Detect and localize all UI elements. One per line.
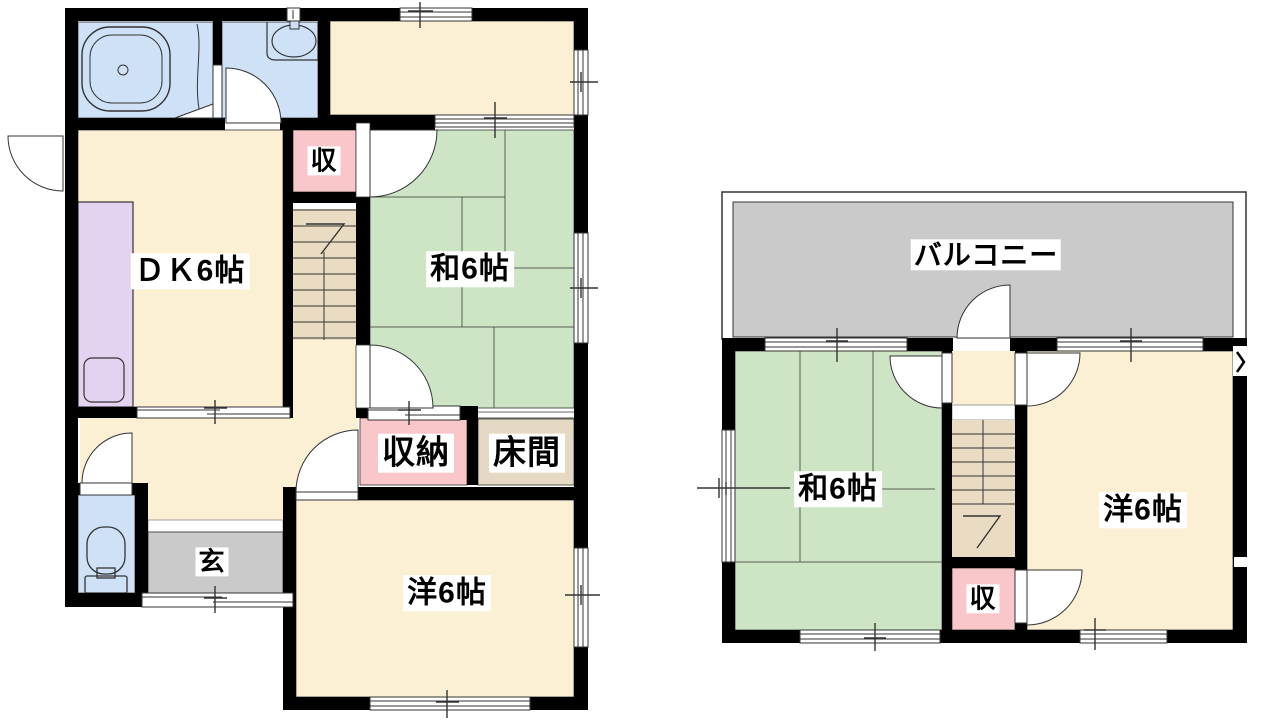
floor1-plan	[8, 2, 600, 718]
label-washitsu-1f: 和6帖	[426, 251, 514, 287]
top-right-room	[330, 21, 574, 115]
stair-landing	[952, 405, 1015, 420]
kitchen-exterior-door	[8, 136, 63, 191]
floor-plan-drawing	[0, 0, 1263, 722]
bath-door-gap	[213, 65, 222, 118]
balcony-window-left	[765, 338, 907, 351]
label-washitsu-2f: 和6帖	[794, 471, 882, 507]
label-balcony: バルコニー	[911, 239, 1061, 270]
label-youshitsu-1f: 洋6帖	[403, 575, 491, 611]
closet2-door-gap	[1015, 570, 1027, 623]
washitsu-top-window	[435, 115, 574, 127]
entrance-sliding-door	[142, 593, 293, 607]
youshitsu-bottom-window	[370, 697, 530, 710]
youshitsu2-bottom-window	[1080, 630, 1167, 643]
right-wall-notch	[1234, 557, 1247, 567]
label-entrance: 玄	[195, 547, 228, 576]
closet-1f-fusuma	[356, 123, 370, 197]
hallway-lower	[148, 487, 283, 520]
top-window	[400, 8, 472, 21]
washitsu2-door-gap	[942, 353, 952, 403]
label-closet-1f: 収	[307, 146, 340, 175]
washitsu2-bottom-window	[800, 630, 940, 643]
label-closet-2f: 収	[966, 584, 999, 613]
washitsu2-left-window	[722, 430, 735, 562]
bathroom	[78, 22, 213, 118]
right-wall-vent-mark	[1233, 346, 1247, 376]
balcony-door-gap	[953, 338, 1010, 351]
corridor	[293, 340, 356, 418]
vent-window	[287, 8, 300, 21]
label-youshitsu-2f: 洋6帖	[1099, 492, 1187, 528]
kitchen-counter	[78, 202, 133, 407]
youshitsu2-door-gap	[1015, 353, 1027, 405]
balcony-window-right	[1057, 338, 1203, 351]
label-storage: 収納	[378, 434, 454, 473]
entrance-step	[148, 520, 283, 532]
label-dk: ＤＫ6帖	[131, 253, 250, 289]
washitsu-door-gap	[356, 345, 370, 408]
toilet-door-gap	[80, 483, 132, 495]
floor-plan-canvas: ＤＫ6帖 和6帖 洋6帖 収 収納 床間 玄 バルコニー 和6帖 洋6帖 収	[0, 0, 1263, 722]
label-tokonoma: 床間	[489, 434, 565, 473]
hall-2f	[952, 351, 1015, 405]
